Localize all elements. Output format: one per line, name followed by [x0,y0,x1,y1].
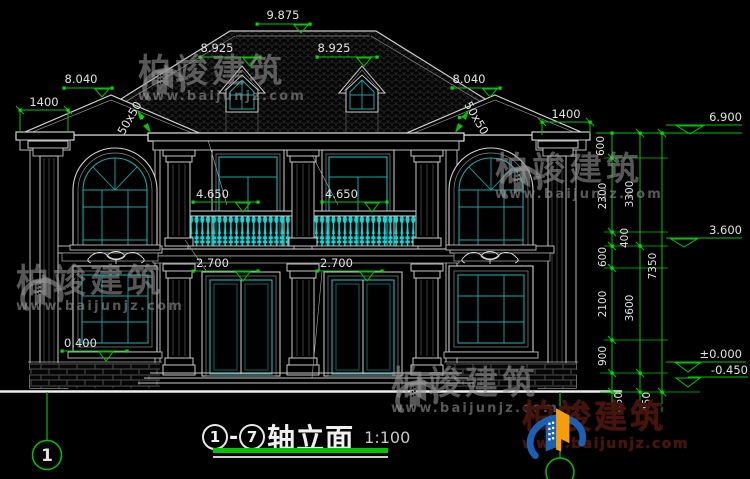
elevation-gable-right: 8.040 [453,72,486,86]
roof [18,31,588,135]
title-dash: - [229,425,238,450]
title-axis-end: 7 [239,424,265,450]
arched-window-right [446,148,536,250]
brand-logo-icon [522,400,588,468]
brick-base-left [30,363,160,388]
title-underline-green [213,448,388,453]
title-axis-start: 1 [202,424,228,450]
chain-inner-1: 2300 [597,183,609,210]
elevation-eave: 6.900 [709,110,742,124]
dim-overhang-left: 1400 [29,95,58,109]
chain-inner-0: 600 [595,136,607,156]
chain-inner-3: 600 [597,247,609,267]
facade [0,132,622,392]
elevation-ridge: 9.875 [267,8,300,22]
title-underline-white [213,456,388,458]
brick-base-right [446,363,576,388]
elevation-dormer-left: 8.925 [201,41,234,55]
axis-bubble-1-label: 1 [41,446,53,466]
entry-door-right [324,272,402,376]
chain-middle-0: 3300 [624,181,636,208]
chain-inner-2: 400 [619,228,631,248]
main-cornice [148,133,464,150]
right-corner-pilaster [538,141,578,388]
brand-logo: 柏竣建筑 www.baijunjz.com [522,400,689,451]
entry-door-left [202,272,280,376]
elevation-balcony-right: 4.650 [325,187,358,201]
elevation-balcony-left: 4.650 [196,187,229,201]
chain-inner-5: 900 [597,346,609,366]
chain-middle-1: 3600 [624,295,636,322]
title-scale: 1:100 [364,428,410,447]
chain-inner-4: 2100 [597,291,609,318]
elevation-floor2: 3.600 [709,223,742,237]
elevation-dormer-right: 8.925 [318,41,351,55]
elevation-sill-left: 0.400 [64,336,97,350]
cad-elevation-drawing: 9.875 8.925 8.925 8.040 8.040 1400 1400 … [0,0,750,479]
elevation-gable-left: 8.040 [65,72,98,86]
elevation-door-left: 2.700 [196,256,229,270]
dim-overhang-right: 1400 [551,107,580,121]
wing-window-right [444,266,538,358]
elevation-floor1: ±0.000 [699,347,742,361]
elevation-ground: -0.450 [711,363,748,377]
chain-outer-0: 7350 [647,253,659,280]
arched-window-left [70,148,160,250]
elevation-door-right: 2.700 [320,256,353,270]
